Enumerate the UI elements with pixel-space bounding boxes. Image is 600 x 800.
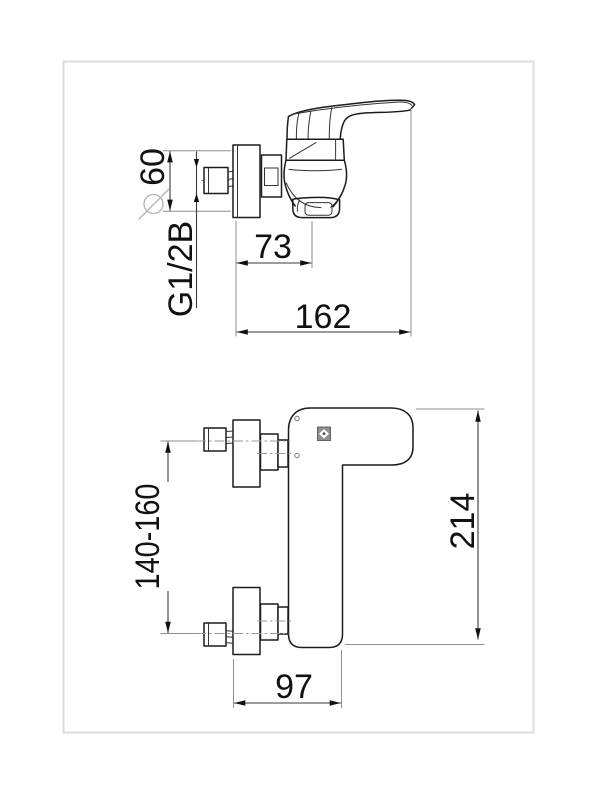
mixer-body-front	[289, 408, 414, 648]
brand-logo-mark	[318, 427, 331, 441]
inlet-fitting-side	[201, 145, 282, 218]
front-view: 140-160 214 97	[129, 408, 485, 708]
diameter-symbol	[139, 189, 170, 220]
dim-total-depth: 162	[295, 298, 352, 336]
hex-nipple	[204, 623, 226, 646]
dim-total-height: 214	[444, 493, 482, 550]
screw-dot	[295, 416, 299, 420]
thread-mark	[227, 437, 234, 438]
screw-dot	[295, 453, 299, 457]
dim-wall-to-outlet: 73	[254, 228, 292, 266]
s-union-adapter	[261, 434, 279, 470]
thread-mark	[227, 643, 234, 644]
inlet-fitting-bottom	[196, 588, 291, 655]
side-view: 60 G1/2B 73 162	[134, 100, 415, 336]
mixer-body-side	[284, 100, 415, 217]
dimensions-side: 60 G1/2B 73 162	[134, 108, 411, 337]
thread-mark	[227, 631, 234, 632]
dim-inlet-spacing: 140-160	[129, 484, 167, 590]
inlet-fitting-top	[196, 420, 291, 487]
thread-mark	[227, 443, 234, 444]
dim-wall-to-front: 97	[275, 668, 313, 706]
technical-drawing-canvas: 60 G1/2B 73 162	[0, 0, 600, 800]
escutcheon-flange	[233, 588, 260, 655]
hex-nipple	[204, 428, 226, 451]
thread-mark	[227, 637, 234, 638]
thread-mark	[227, 431, 234, 432]
escutcheon-flange	[233, 420, 260, 487]
s-union-adapter	[261, 604, 279, 640]
threaded-nipple	[204, 168, 228, 194]
dim-thread-size: G1/2B	[162, 221, 200, 317]
dim-flange-diameter: 60	[134, 148, 172, 186]
